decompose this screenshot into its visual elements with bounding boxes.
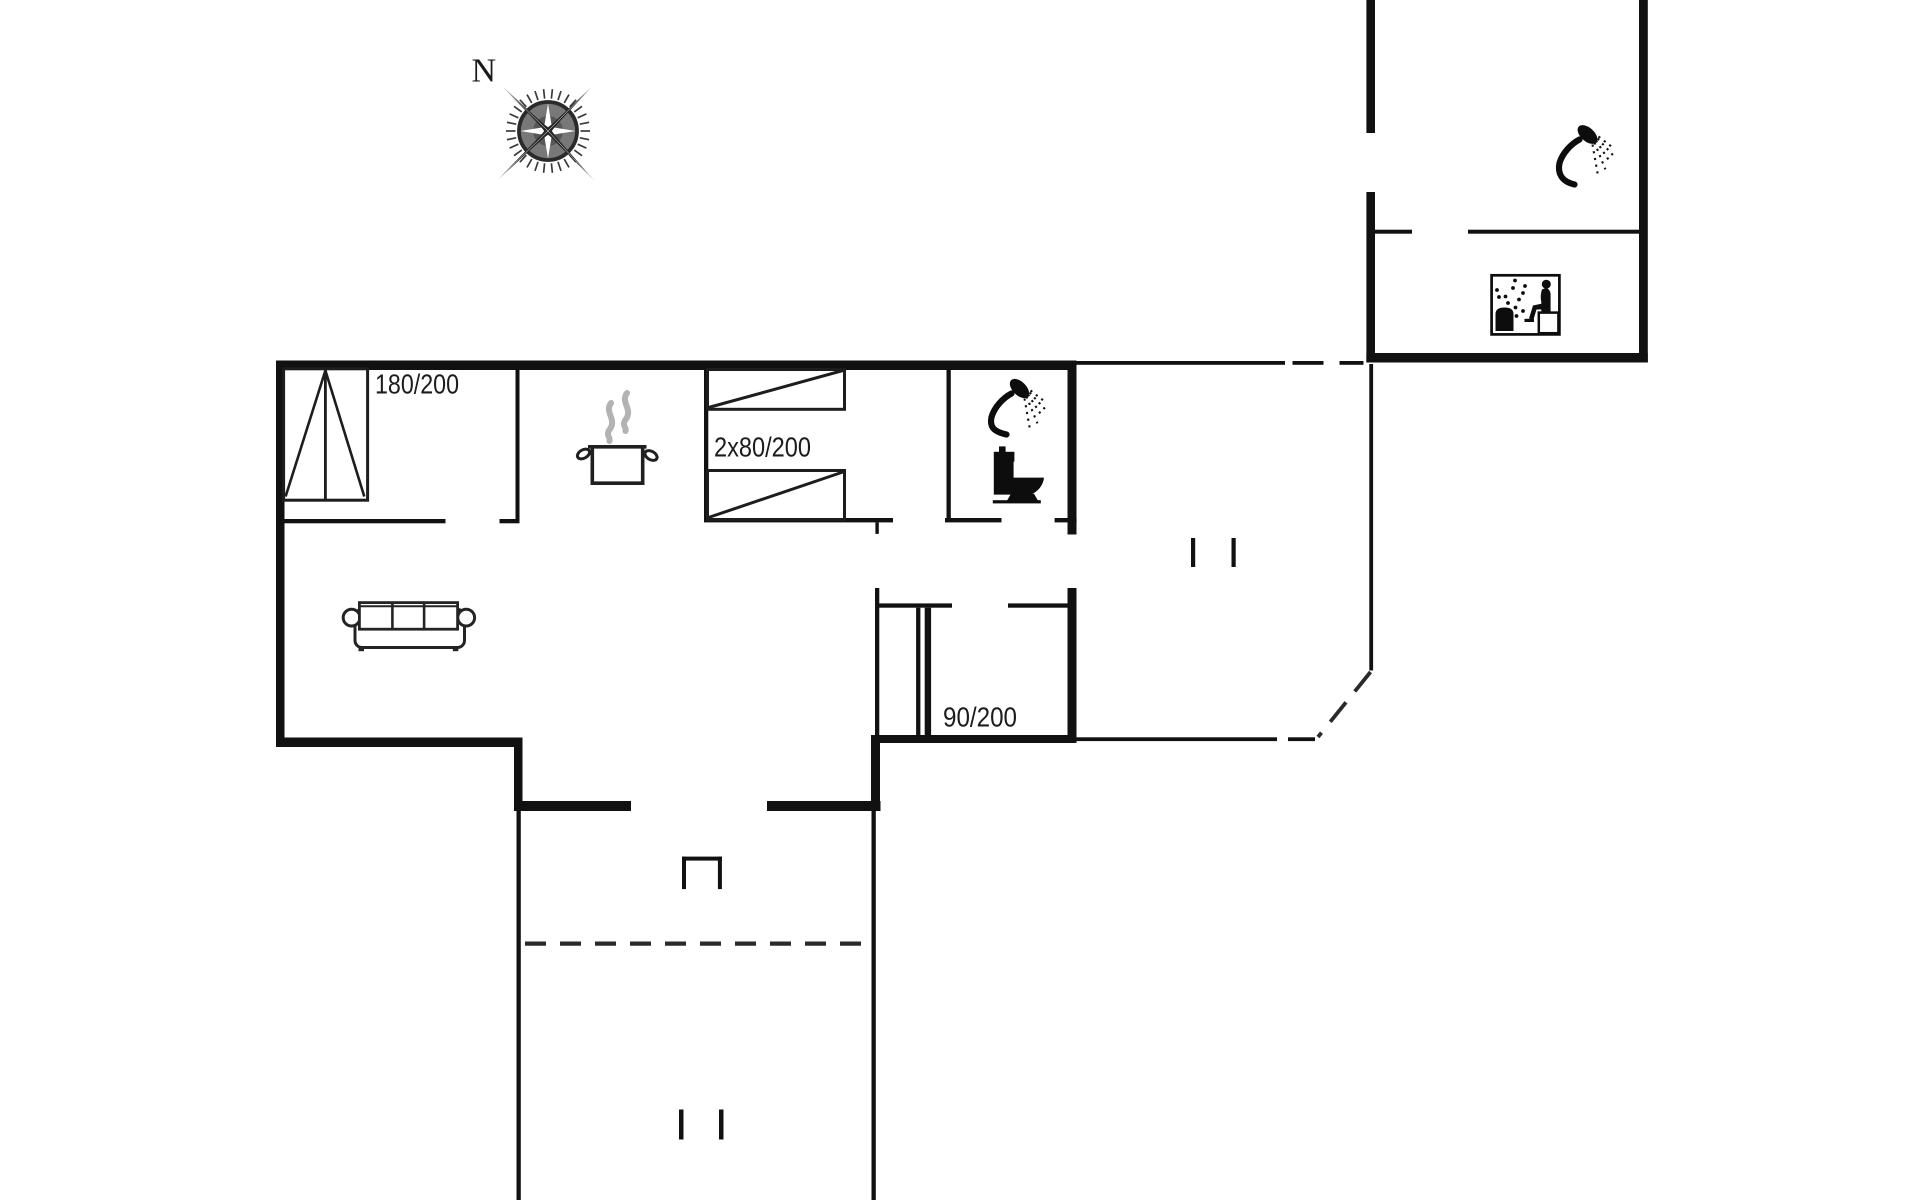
svg-text:N: N	[472, 53, 497, 90]
svg-text:180/200: 180/200	[375, 369, 459, 400]
svg-text:90/200: 90/200	[943, 702, 1017, 733]
svg-text:2x80/200: 2x80/200	[714, 432, 811, 463]
